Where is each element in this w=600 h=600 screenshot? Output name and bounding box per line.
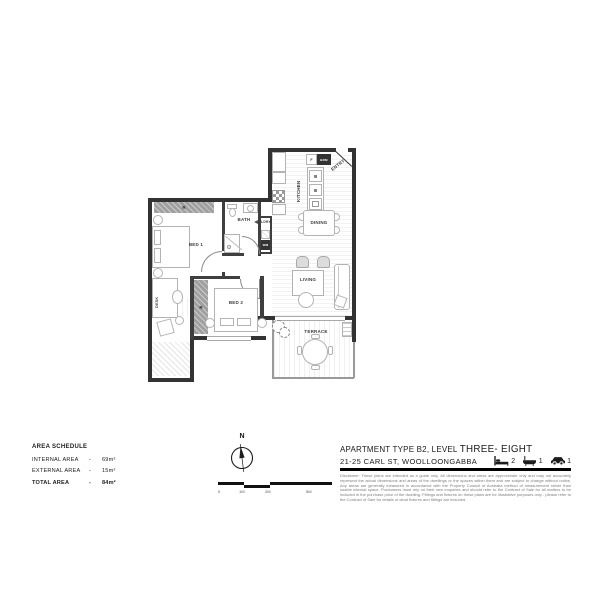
nightstand xyxy=(257,318,267,328)
terrace-chair xyxy=(311,365,320,370)
bed2-label: BED 2 xyxy=(216,300,256,305)
laundry-label: LDRY xyxy=(260,220,272,224)
car-icon xyxy=(551,456,565,466)
fridge: F xyxy=(306,154,317,165)
scale-label: 2M xyxy=(265,489,271,494)
robe-label: R xyxy=(199,305,202,310)
oven xyxy=(272,190,285,203)
kitchen-cabinet xyxy=(272,152,286,172)
kitchen-label: KITCHEN xyxy=(296,181,301,202)
title-block: APARTMENT TYPE B2, LEVEL THREE- EIGHT 21… xyxy=(340,443,571,505)
pillow xyxy=(154,248,161,263)
apartment-title-prefix: APARTMENT TYPE B2, LEVEL xyxy=(340,445,460,454)
pillow xyxy=(237,318,251,326)
armchair xyxy=(296,256,309,268)
stat-value: 1 xyxy=(567,458,571,465)
area-row-sep: - xyxy=(89,468,91,474)
terrace-edge xyxy=(272,377,354,379)
area-row-value: 84m² xyxy=(102,480,116,486)
bath-icon xyxy=(523,456,536,466)
wall xyxy=(352,148,356,320)
ac-unit xyxy=(342,322,352,337)
stat-bedrooms: 2 xyxy=(494,456,515,466)
area-schedule-title: AREA SCHEDULE xyxy=(32,444,87,450)
wall xyxy=(352,318,356,342)
stat-carparks: 1 xyxy=(551,456,571,466)
desk-label: DESK xyxy=(155,297,159,308)
robe-label: R xyxy=(182,205,185,210)
terrace-chair xyxy=(311,334,320,339)
kitchen-cabinet xyxy=(272,172,286,184)
scale-bar: 0 1M 2M 5M xyxy=(218,482,334,496)
wall xyxy=(222,253,244,256)
fridge-label: F xyxy=(310,158,312,162)
scale-label: 5M xyxy=(306,489,312,494)
toilet xyxy=(229,208,236,217)
dining-label: DINING xyxy=(303,220,335,225)
desk-chair xyxy=(172,290,183,304)
nightstand xyxy=(153,268,163,278)
laundry-shelf xyxy=(261,230,270,239)
pillow xyxy=(154,230,161,245)
area-row-sep: - xyxy=(89,457,91,463)
nightstand xyxy=(153,215,163,225)
area-row-value: 69m² xyxy=(102,457,116,463)
bed1-label: BED 1 xyxy=(176,242,216,247)
sink-bowl xyxy=(312,201,319,207)
scale-label: 1M xyxy=(239,489,245,494)
scale-segment xyxy=(270,482,332,485)
wall xyxy=(260,252,272,254)
north-compass: N xyxy=(224,433,260,475)
area-row-label: TOTAL AREA xyxy=(32,480,69,486)
stat-value: 2 xyxy=(511,458,515,465)
compass-icon xyxy=(224,441,260,475)
dwelling-stats: 2 1 1 xyxy=(494,456,571,466)
laundry-arrow-icon xyxy=(254,220,258,224)
basin xyxy=(247,205,254,212)
scale-segment xyxy=(244,485,270,488)
kitchen-cabinet xyxy=(272,204,286,215)
terrace-sliding-door xyxy=(275,316,345,321)
washer-label: WM xyxy=(263,243,269,247)
terrace-chair xyxy=(328,346,333,355)
broom-label: BRM xyxy=(320,158,327,162)
address: 21-25 CARL ST, WOOLLOONGABBA xyxy=(340,457,477,466)
bed1-door-arc xyxy=(201,251,222,272)
floor-plan-sheet: R BED 1 DESK BATH LDRY WM F BRM xyxy=(0,0,600,600)
side-table xyxy=(175,316,184,325)
wall xyxy=(190,276,240,279)
burner-dot xyxy=(314,189,317,192)
area-row-value: 15m² xyxy=(102,468,116,474)
terrace-edge xyxy=(353,342,355,378)
armchair xyxy=(317,256,330,268)
plant xyxy=(279,327,290,338)
apartment-title: APARTMENT TYPE B2, LEVEL THREE- EIGHT xyxy=(340,444,532,455)
area-schedule: AREA SCHEDULE INTERNAL AREA - 69m² EXTER… xyxy=(32,444,142,494)
area-row-label: EXTERNAL AREA xyxy=(32,468,80,474)
disclaimer-text: Disclaimer: These plans are intended as … xyxy=(340,474,571,503)
divider-rule xyxy=(340,468,571,471)
rug xyxy=(298,292,314,308)
wall xyxy=(148,378,194,382)
burner-dot xyxy=(314,175,317,178)
courtyard-chair xyxy=(156,318,174,336)
stat-bathrooms: 1 xyxy=(523,456,542,466)
terrace-chair xyxy=(297,346,302,355)
shower-drain xyxy=(227,245,231,249)
north-label: N xyxy=(224,433,260,440)
pillow xyxy=(220,318,234,326)
washing-machine: WM xyxy=(261,240,270,250)
bed-icon xyxy=(494,456,509,466)
scale-label: 0 xyxy=(218,489,220,494)
stat-value: 1 xyxy=(539,458,543,465)
bed2-window xyxy=(207,336,251,341)
floor-plan: R BED 1 DESK BATH LDRY WM F BRM xyxy=(146,146,358,386)
terrace-table xyxy=(302,339,328,365)
courtyard-hatch xyxy=(152,342,190,376)
bed2-door-leaf xyxy=(259,279,260,299)
area-row-sep: - xyxy=(89,480,91,486)
wall xyxy=(260,276,264,318)
nightstand xyxy=(205,318,215,328)
wall xyxy=(250,336,266,340)
area-row-label: INTERNAL AREA xyxy=(32,457,79,463)
wall xyxy=(344,316,356,320)
apartment-title-levels: THREE- EIGHT xyxy=(460,444,533,455)
bed1-robe: R xyxy=(154,202,214,213)
scale-segment xyxy=(218,482,244,485)
living-label: LIVING xyxy=(292,277,324,282)
wall xyxy=(190,340,194,382)
broom-cupboard: BRM xyxy=(317,154,331,165)
